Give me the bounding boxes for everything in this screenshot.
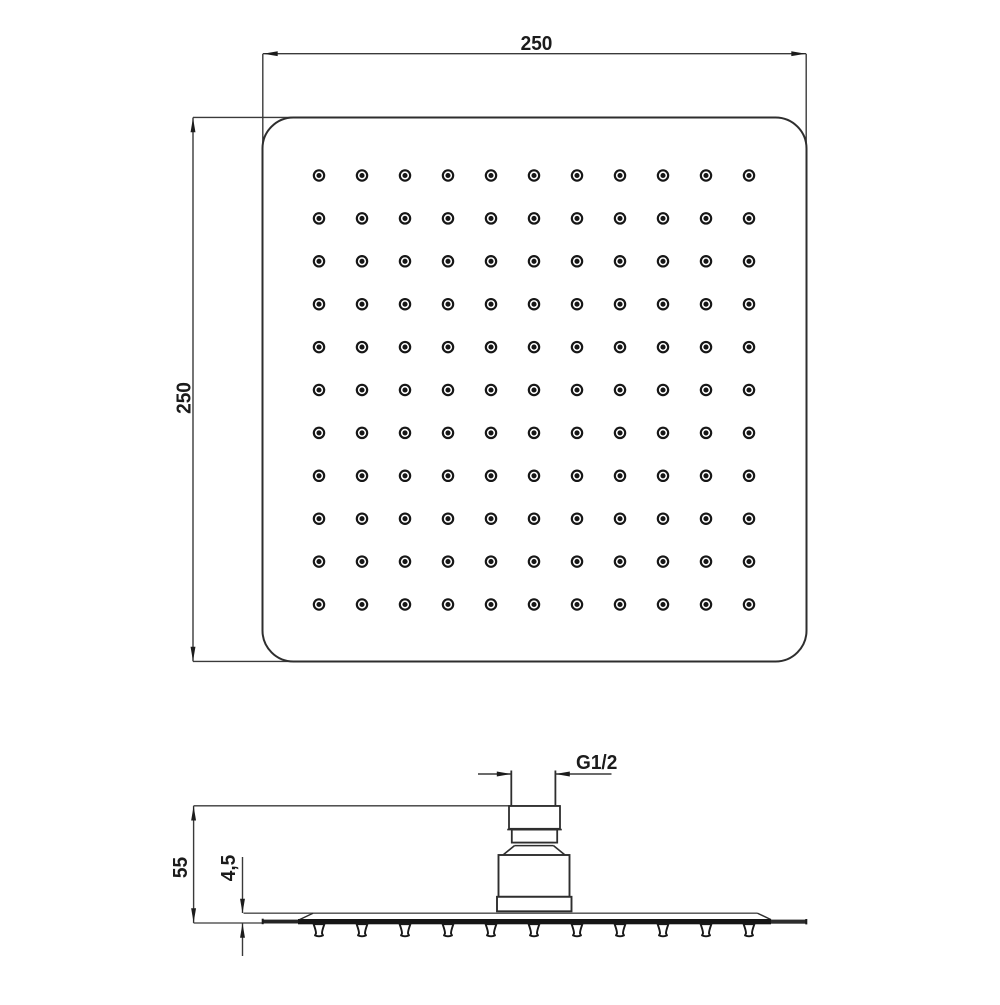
- svg-text:250: 250: [521, 33, 553, 56]
- svg-text:G1/2: G1/2: [576, 751, 617, 774]
- svg-text:55: 55: [169, 857, 192, 878]
- svg-text:250: 250: [173, 382, 196, 414]
- svg-text:4,5: 4,5: [217, 855, 240, 881]
